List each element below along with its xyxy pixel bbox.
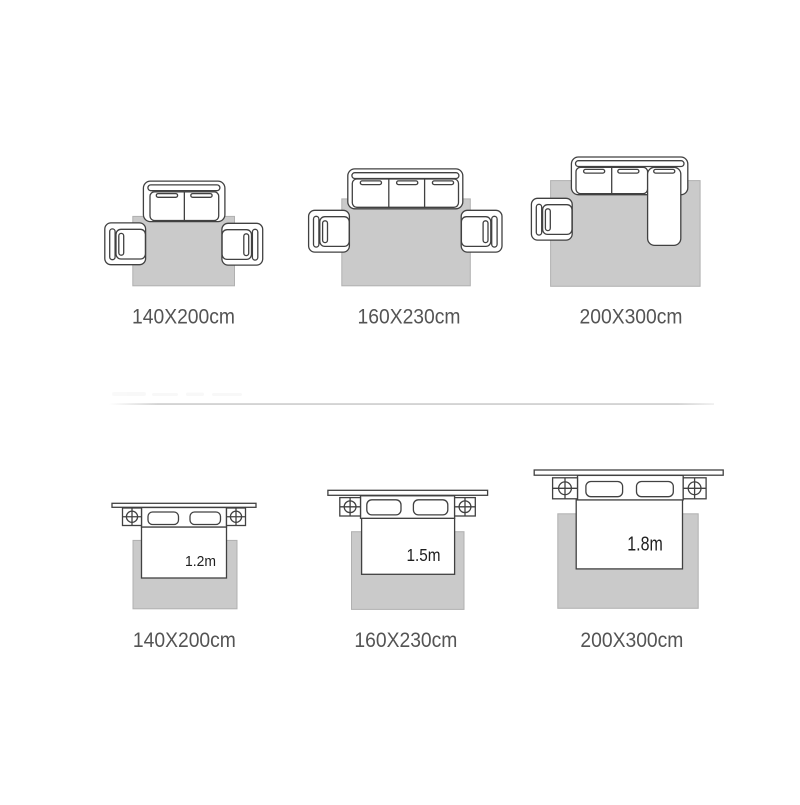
svg-text:1.8m: 1.8m [627,534,663,556]
svg-text:140X200cm: 140X200cm [133,628,236,652]
svg-text:200X300cm: 200X300cm [580,628,683,652]
svg-text:1.5m: 1.5m [407,545,441,565]
svg-text:140X200cm: 140X200cm [132,305,235,329]
svg-text:160X230cm: 160X230cm [354,628,457,652]
svg-text:200X300cm: 200X300cm [580,305,683,329]
svg-text:160X230cm: 160X230cm [358,305,461,329]
svg-text:1.2m: 1.2m [185,554,216,570]
